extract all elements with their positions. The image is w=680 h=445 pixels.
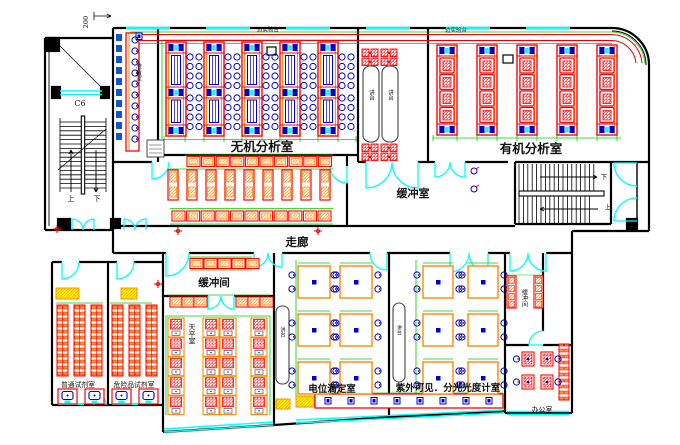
room-label-prep-room: 准备室 <box>135 62 142 81</box>
office-shelf <box>559 344 569 400</box>
wall-cabinet <box>116 122 122 129</box>
stair-down-label: 下 <box>601 173 608 181</box>
small-bench <box>275 157 288 167</box>
south-bench <box>315 394 503 408</box>
monitor-icon <box>417 398 423 405</box>
room-label-inorganic-lab: 无机分析室 <box>230 139 294 154</box>
monitor-icon <box>348 398 354 405</box>
balance-table <box>251 318 267 337</box>
wall-cabinet <box>116 34 122 41</box>
balance-table <box>168 376 184 395</box>
wall-cabinet <box>116 133 122 140</box>
room-label-uv-room: 紫外可见．分光光度计室 <box>396 382 501 394</box>
small-bench <box>236 297 249 307</box>
sink <box>85 389 104 404</box>
stair-up-label: 上 <box>68 194 75 203</box>
balance-table <box>168 357 184 376</box>
small-bench <box>216 157 229 167</box>
podium <box>276 306 289 384</box>
room-label-office: 办公室 <box>532 405 553 414</box>
balance-table <box>251 357 267 376</box>
balance-table <box>220 318 236 337</box>
reagent-shelf <box>91 305 102 376</box>
small-bench <box>170 297 183 307</box>
lab-bench <box>557 45 577 135</box>
reagent-shelf <box>146 305 157 376</box>
monitor-icon <box>463 398 469 405</box>
small-bench <box>274 211 287 221</box>
lab-bench <box>204 42 224 136</box>
small-bench <box>187 211 200 221</box>
room-label-buffer-room: 缓冲室 <box>397 186 430 200</box>
balance-table <box>251 396 267 415</box>
podium-label: 讲台 <box>368 88 375 102</box>
podium-label: 讲台 <box>396 324 402 336</box>
small-bench <box>172 211 185 221</box>
small-bench <box>204 259 217 269</box>
wall-cabinet <box>116 56 122 63</box>
room-label-small-buffer: 缓冲间 <box>521 288 528 308</box>
small-bench <box>260 157 273 167</box>
small-bench <box>245 157 258 167</box>
balance-table <box>220 396 236 415</box>
floor-plan: 无机分析室 有机分析室 缓冲室 走廊 缓冲间 天平室 电位滴定室 紫外可见．分光… <box>0 0 680 445</box>
floor-plan-canvas: 无机分析室 有机分析室 缓冲室 走廊 缓冲间 天平室 电位滴定室 紫外可见．分光… <box>0 0 680 445</box>
reagent-shelf <box>129 305 140 376</box>
lab-bench <box>280 42 300 136</box>
prep-bench <box>187 170 197 200</box>
wall-cabinet <box>116 67 122 74</box>
monitor-icon <box>136 33 142 40</box>
balance-table <box>220 357 236 376</box>
balance-table <box>203 318 219 337</box>
lab-bench <box>166 42 186 136</box>
reagent-shelf <box>74 305 85 376</box>
prep-bench <box>206 170 216 200</box>
monitor-icon <box>394 398 400 405</box>
window-tag-c6: C6 <box>74 99 85 108</box>
balance-table <box>203 376 219 395</box>
monitor-icon <box>325 398 331 405</box>
small-bench <box>289 211 302 221</box>
cabinet-column <box>534 276 543 308</box>
small-bench <box>187 157 200 167</box>
balance-table <box>168 318 184 337</box>
small-bench <box>260 297 273 307</box>
small-bench <box>194 297 207 307</box>
balance-table <box>220 337 236 356</box>
small-bench <box>245 211 258 221</box>
sink <box>58 389 77 404</box>
reagent-shelf <box>57 305 68 376</box>
room-label-corridor: 走廊 <box>285 235 309 249</box>
office-desk <box>541 352 553 366</box>
small-bench <box>230 211 243 221</box>
sink <box>112 389 131 404</box>
small-bench <box>248 297 261 307</box>
balance-table <box>203 396 219 415</box>
podium <box>393 303 405 382</box>
wall-cabinet <box>116 45 122 52</box>
balance-table <box>203 337 219 356</box>
small-bench <box>231 157 244 167</box>
reagent-shelf <box>112 305 123 376</box>
room-label-hazard-reagent: 危险品试剂室 <box>114 380 155 389</box>
room-label-balance-room: 天平室 <box>188 324 196 345</box>
small-bench <box>318 157 331 167</box>
office-desk <box>541 375 553 389</box>
prep-bench <box>320 170 330 200</box>
prep-bench <box>301 170 311 200</box>
monitor-icon <box>371 398 377 405</box>
lab-bench <box>242 42 262 136</box>
balance-table <box>203 357 219 376</box>
side-bench-label: 边实验台 <box>257 26 280 34</box>
monitor-icon <box>486 398 492 405</box>
room-label-titration-room: 电位滴定室 <box>308 383 356 395</box>
room-label-buffer-lobby: 缓冲间 <box>197 276 230 289</box>
sink <box>139 389 158 404</box>
small-bench <box>289 157 302 167</box>
small-bench <box>218 259 231 269</box>
office-desk <box>522 352 534 366</box>
room-label-organic-lab: 有机分析室 <box>500 141 563 156</box>
prep-bench <box>225 170 235 200</box>
wall-cabinet <box>116 89 122 96</box>
podium <box>382 66 398 142</box>
podium <box>363 66 379 142</box>
lab-bench <box>597 45 617 135</box>
prep-bench <box>168 170 178 200</box>
stair-down-label: 下 <box>94 195 101 203</box>
balance-table <box>251 337 267 356</box>
dimension-200: 200 <box>82 16 90 28</box>
monitor-icon <box>440 398 446 405</box>
lab-bench <box>517 45 537 135</box>
wall-cabinet <box>116 111 122 118</box>
stair-up-label: 上 <box>605 202 612 211</box>
room-label-general-reagent: 普通试剂室 <box>61 380 95 389</box>
balance-table <box>168 396 184 415</box>
lab-bench <box>318 42 338 136</box>
wall-cabinet <box>116 100 122 107</box>
podium-label: 讲台 <box>387 88 394 102</box>
prep-bench <box>244 170 254 200</box>
small-bench <box>260 211 273 221</box>
office-desk <box>522 375 534 389</box>
small-bench <box>304 157 317 167</box>
small-bench <box>216 211 229 221</box>
cabinet-column <box>507 276 516 308</box>
lab-bench <box>437 45 457 135</box>
side-bench-label: 边实验台 <box>445 26 468 34</box>
small-bench <box>303 211 316 221</box>
prep-bench <box>263 170 273 200</box>
balance-table <box>251 376 267 395</box>
small-bench <box>202 157 215 167</box>
wall-cabinet <box>116 78 122 85</box>
small-bench <box>201 211 214 221</box>
small-bench <box>232 259 245 269</box>
podium-label: 讲台 <box>280 326 286 338</box>
lab-bench <box>477 45 497 135</box>
small-bench <box>246 259 259 269</box>
small-bench <box>182 297 195 307</box>
balance-table <box>168 337 184 356</box>
prep-bench <box>282 170 292 200</box>
small-bench <box>318 211 331 221</box>
balance-table <box>220 376 236 395</box>
small-bench <box>190 259 203 269</box>
